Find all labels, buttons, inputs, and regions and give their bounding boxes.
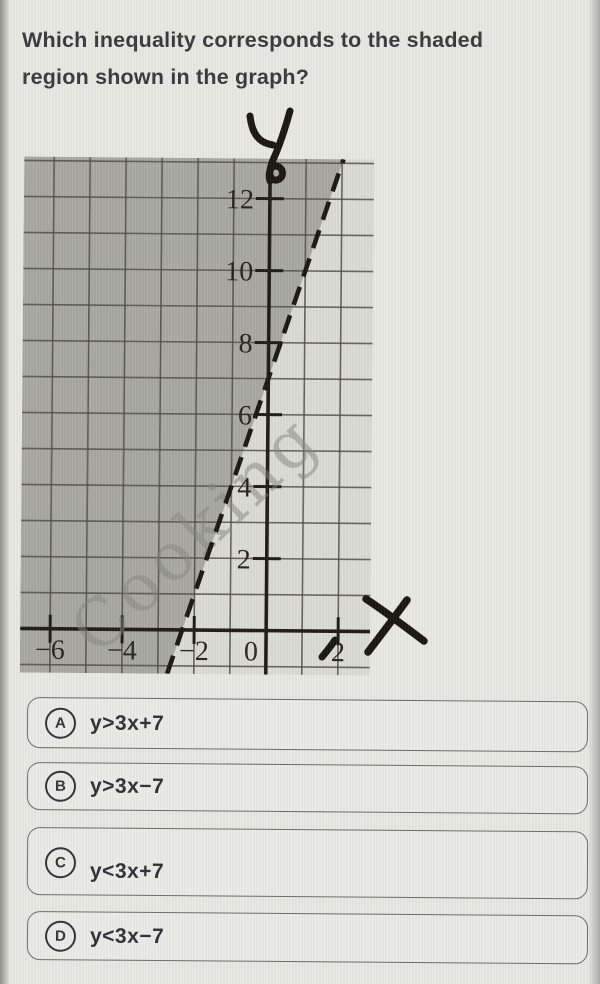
photo-edge-shadow-right <box>588 0 600 984</box>
option-label: y<3x+7 <box>90 859 164 884</box>
tick-label: 2 <box>331 637 345 668</box>
option-label: y<3x−7 <box>90 924 164 949</box>
tick-label: 12 <box>226 184 254 215</box>
question-text: Which inequality corresponds to the shad… <box>22 22 542 96</box>
option-label: y>3x+7 <box>90 711 164 736</box>
tick-label: 0 <box>244 636 258 667</box>
tick-label: 10 <box>225 256 253 287</box>
tick-label: −6 <box>35 635 65 666</box>
tick-label: 4 <box>237 472 251 503</box>
option-letter-badge: C <box>45 847 76 878</box>
tick-label: 2 <box>237 544 251 575</box>
option-letter-badge: A <box>45 707 76 738</box>
option-letter-badge: D <box>45 920 76 951</box>
answer-option-c[interactable]: C y<3x+7 <box>27 827 589 899</box>
handwritten-x-label <box>366 599 424 652</box>
answer-option-d[interactable]: D y<3x−7 <box>27 911 588 964</box>
tick-label: −2 <box>179 636 209 667</box>
graph-svg: Cooking 24681012−6−4−202 <box>20 156 374 675</box>
answer-option-a[interactable]: A y>3x+7 <box>27 697 588 752</box>
inequality-graph: Cooking 24681012−6−4−202 <box>20 156 374 675</box>
option-letter-badge: B <box>45 771 76 802</box>
photo-edge-shadow-left <box>0 0 10 984</box>
tick-label: −4 <box>107 635 137 666</box>
tick-label: 8 <box>238 328 252 359</box>
option-label: y>3x−7 <box>90 774 164 799</box>
answer-option-b[interactable]: B y>3x−7 <box>27 762 588 814</box>
tick-label: 6 <box>238 400 252 431</box>
